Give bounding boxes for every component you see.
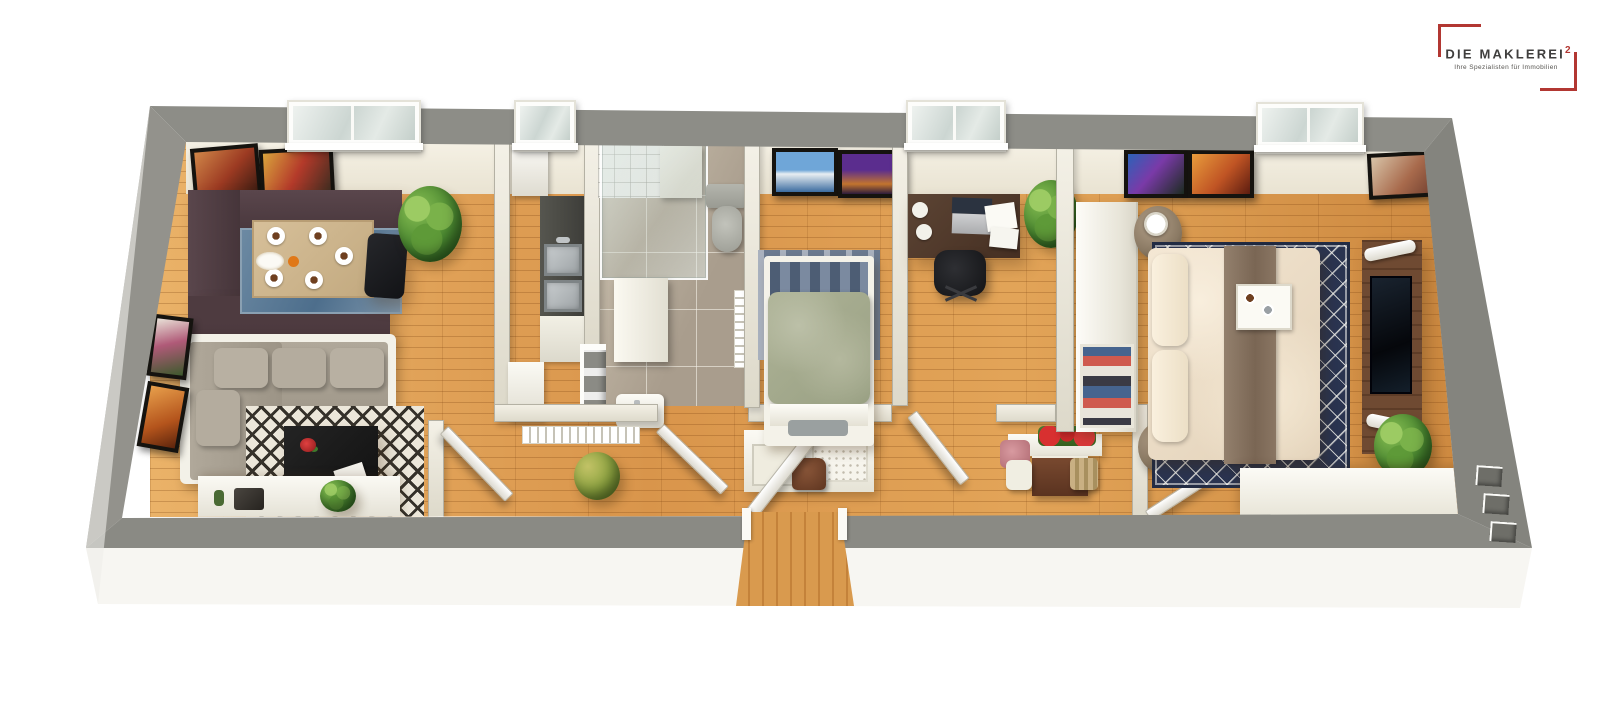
window-glass <box>1262 108 1358 142</box>
logo-brand-text: DIE MAKLEREI <box>1445 46 1565 61</box>
wardrobe-clothes-shelf <box>1080 344 1134 428</box>
window-glass <box>293 106 415 140</box>
wall <box>892 138 908 406</box>
small-stool <box>1006 460 1032 490</box>
bottom-wall <box>86 514 1532 548</box>
wicker-basket <box>1070 458 1098 490</box>
wall <box>1056 138 1074 432</box>
vent <box>1489 521 1516 543</box>
foot-pad <box>788 420 848 436</box>
picture-art <box>776 152 834 192</box>
window <box>1256 102 1364 154</box>
desk-plate <box>912 202 928 218</box>
bed-runner <box>1224 246 1276 464</box>
potted-plant <box>398 186 462 262</box>
orange-bowl <box>288 256 299 267</box>
flower-decor <box>300 438 316 452</box>
entrance-threshold <box>736 512 854 606</box>
radio <box>234 488 264 510</box>
television <box>1370 276 1412 394</box>
window <box>906 100 1006 152</box>
picture-frame <box>1367 150 1443 200</box>
wall <box>996 404 1056 422</box>
bottom-wall-face <box>86 548 1532 608</box>
sofa-cushion <box>272 348 326 388</box>
kitchen-faucet <box>556 237 570 243</box>
picture-frame <box>146 314 193 380</box>
picture-frame <box>1124 150 1188 198</box>
tray-cup <box>1244 292 1256 304</box>
window-mullion <box>351 106 354 140</box>
sofa-cushion <box>330 348 384 388</box>
floorplan-page: { "page": { "background": "#ffffff", "de… <box>0 0 1597 720</box>
washing-machine <box>614 278 668 362</box>
hall-plant <box>574 452 620 500</box>
logo-brand: DIE MAKLEREI2 <box>1444 45 1572 61</box>
picture-art <box>141 385 185 448</box>
kitchen-sink <box>544 280 582 312</box>
picture-art <box>1128 154 1184 194</box>
sofa-cushion <box>214 348 268 388</box>
logo-superscript: 2 <box>1565 45 1571 56</box>
logo-tagline: Ihre Spezialisten für Immobilien <box>1444 64 1568 71</box>
pillow <box>1152 254 1188 346</box>
picture-frame <box>1188 150 1254 198</box>
sideboard <box>198 476 400 518</box>
shower-glass <box>600 142 708 280</box>
plate <box>267 227 285 245</box>
plate <box>265 269 283 287</box>
toilet-bowl <box>712 206 742 252</box>
toilet <box>706 184 746 208</box>
window-glass <box>520 106 570 140</box>
plate <box>335 247 353 265</box>
pillow <box>1152 350 1188 442</box>
office-chair <box>934 250 986 296</box>
papers <box>989 227 1019 250</box>
kids-blanket <box>768 292 870 404</box>
plate <box>305 271 323 289</box>
kitchen-worktop-white <box>540 316 584 362</box>
kitchen-tall-cabinet <box>512 142 548 196</box>
bedside-lamp <box>1144 212 1168 236</box>
kitchen-sink <box>544 244 582 276</box>
picture-art <box>1371 154 1439 195</box>
green-bottle <box>214 490 224 506</box>
window-glass <box>912 106 1000 140</box>
window-mullion <box>953 106 956 140</box>
apartment-interior <box>0 0 1597 720</box>
picture-art <box>1192 154 1250 194</box>
sofa-cushion <box>196 390 240 446</box>
coat-rack <box>522 426 640 444</box>
sideboard-plant <box>320 480 356 512</box>
vent <box>1475 465 1502 487</box>
plate <box>309 227 327 245</box>
serving-platter <box>256 252 284 270</box>
agency-logo: DIE MAKLEREI2 Ihre Spezialisten für Immo… <box>1408 18 1584 98</box>
desk-plate <box>916 224 932 240</box>
left-wall-face <box>86 106 150 604</box>
vent <box>1482 493 1509 515</box>
picture-frame <box>772 148 838 196</box>
window-bench <box>1240 468 1465 516</box>
window-mullion <box>1307 108 1310 142</box>
wall <box>494 404 658 422</box>
picture-art <box>151 318 189 375</box>
tray-cup <box>1262 304 1274 316</box>
